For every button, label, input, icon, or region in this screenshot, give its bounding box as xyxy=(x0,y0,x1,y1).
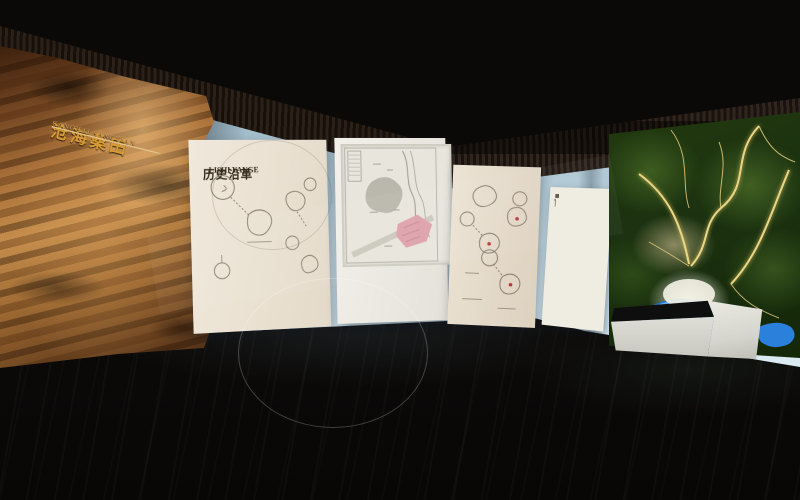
rock-inscription: 沧海桑田 CANGHAI SANGTIAN xyxy=(54,116,180,147)
model-pedestal xyxy=(611,297,767,359)
rock-carved-text-lines xyxy=(53,122,162,149)
watermark-ring xyxy=(238,278,428,428)
rock-title-en: CANGHAI SANGTIAN xyxy=(52,119,137,148)
rock-title-cn: 沧海桑田 xyxy=(49,116,132,160)
exhibition-hall-scene: 沧海桑田 CANGHAI SANGTIAN 历史沿革LISHI YANGE xyxy=(0,0,800,500)
